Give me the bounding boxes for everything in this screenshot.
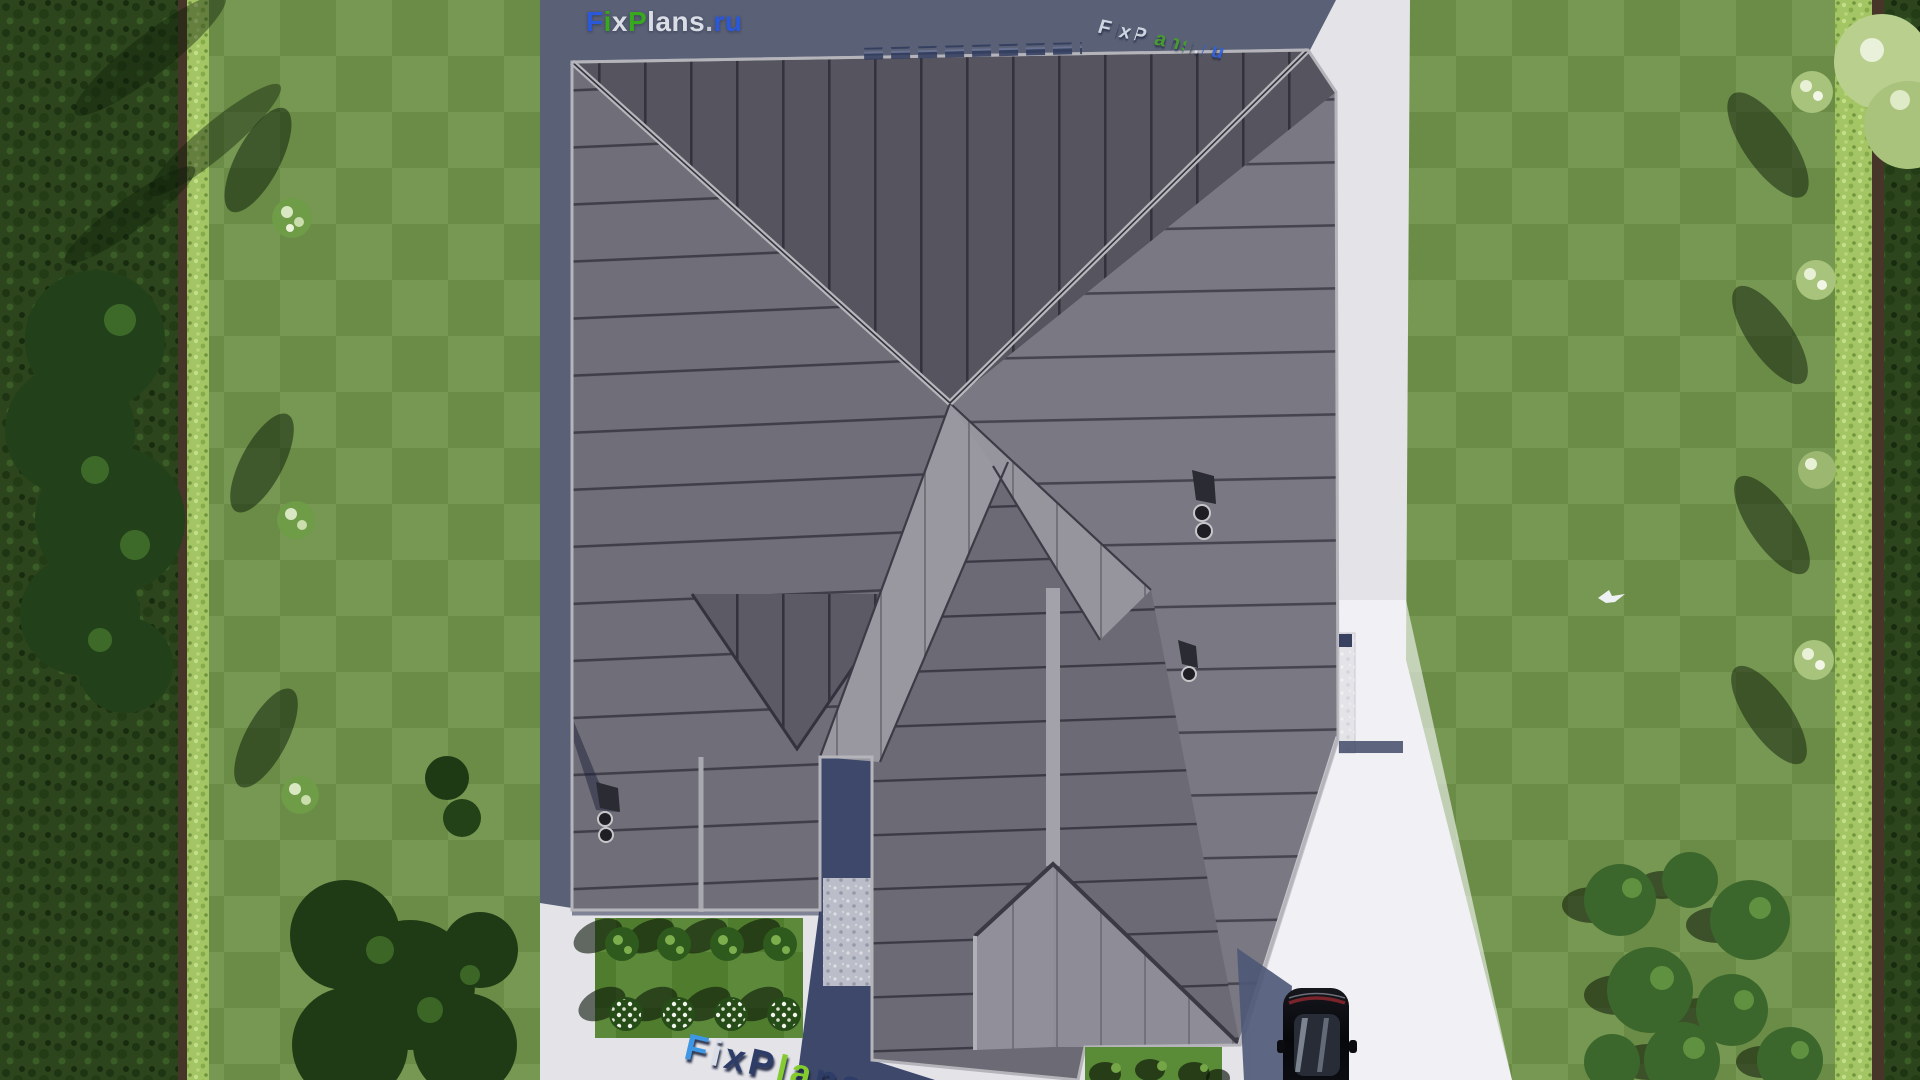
garden-bed (568, 911, 803, 1038)
logo-letter: i (604, 6, 612, 37)
logo-letter: F (586, 6, 604, 37)
gravel-path (823, 878, 871, 986)
logo-letter: x (612, 6, 628, 37)
render-canvas (0, 0, 1920, 1080)
logo-letter: lans (647, 6, 705, 37)
aerial-render-scene: FixPlans.ru FixPlans.ru FixPlans.ru (0, 0, 1920, 1080)
logo-letter: P (628, 6, 647, 37)
right-hedge (1835, 0, 1872, 1080)
car-mirror-left (1277, 1040, 1285, 1053)
car-mirror-right (1349, 1040, 1357, 1053)
logo-letter: ru (713, 6, 742, 37)
right-fence (1872, 0, 1884, 1080)
green-strip (1085, 1047, 1230, 1080)
small-bush (443, 799, 481, 837)
watermark-top-left: FixPlans.ru (586, 6, 742, 38)
small-bush (425, 756, 469, 800)
